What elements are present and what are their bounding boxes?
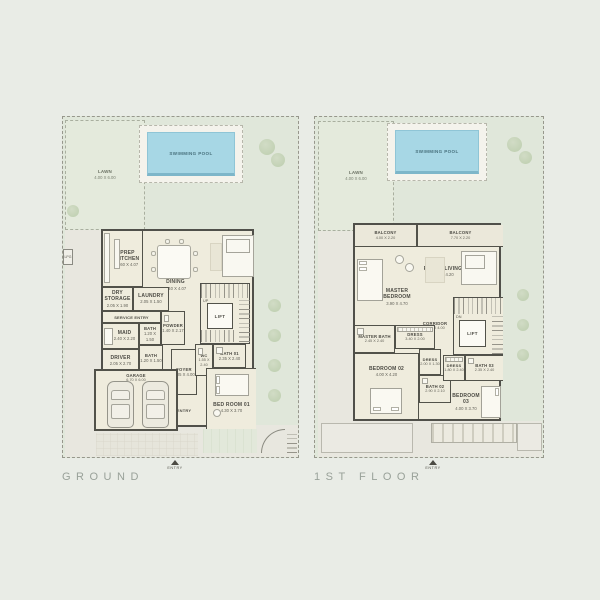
lawn-label: LAWN 4.00 X 6.00: [94, 169, 115, 180]
pillow: [216, 386, 220, 394]
car-cabin: [146, 404, 165, 419]
plan-title-first-floor: 1ST FLOOR: [314, 471, 424, 483]
kitchen-island: [114, 239, 120, 269]
room-name: DRESS: [420, 357, 439, 362]
kitchen-counter: [104, 233, 110, 283]
room-label: MAID 2.40 X 2.20: [114, 330, 135, 342]
chair: [151, 251, 156, 256]
stairs-core: UP LIFT: [200, 283, 250, 344]
room-name: LAUNDRY: [138, 293, 164, 299]
front-planting: [203, 429, 257, 453]
room-dress-master: DRESS 3.40 X 2.00: [395, 325, 435, 349]
room-dims: 3.40 X 2.00: [405, 337, 424, 342]
room-dims: 2.00 X 1.30: [420, 362, 439, 367]
pillow: [391, 407, 399, 411]
stair-direction-label: DN: [456, 315, 461, 319]
room-master-bedroom: MASTER BEDROOM 3.90 X 4.70: [355, 247, 417, 325]
room-label: DRESS 1.80 X 2.40: [444, 363, 463, 373]
first-house-outline: BALCONY 4.00 X 2.20 BALCONY 7.70 X 2.20 …: [353, 223, 501, 421]
pouf: [213, 409, 221, 417]
pillow: [359, 261, 367, 265]
plan-title-ground: GROUND: [62, 471, 144, 483]
tree: [519, 151, 532, 164]
tree: [67, 205, 79, 217]
entry-label: ENTRY: [418, 466, 448, 470]
room-label: BATH 1.20 X 1.50: [140, 353, 161, 364]
lift: LIFT: [207, 303, 233, 329]
tree: [517, 319, 529, 331]
shower: [357, 328, 364, 335]
bed: [357, 259, 383, 301]
chair: [193, 267, 198, 272]
entry-arrow-icon: [171, 460, 179, 465]
armchair: [405, 263, 414, 272]
room-living: LIVING 3.80 X 4.07: [208, 231, 256, 283]
floorplan-sheet: LAWN 4.00 X 6.00 SWIMMING POOL LPG: [0, 0, 600, 600]
room-service-entry: SERVICE ENTRY: [103, 311, 161, 323]
room-name: GARAGE: [126, 373, 146, 378]
tree: [517, 349, 529, 361]
room-dry-storage: DRY STORAGE 2.05 X 1.90: [103, 287, 133, 311]
room-name: BALCONY: [449, 230, 471, 235]
room-bath03: BATH 03 2.35 X 2.40: [465, 355, 503, 381]
sofa-cushion: [465, 255, 485, 269]
room-label: DRESS 2.00 X 1.30: [420, 357, 439, 367]
tree: [271, 153, 285, 167]
room-label: DRIVER 2.05 X 2.70: [110, 355, 131, 367]
room-bath-maid: BATH 1.20 X 1.50: [139, 323, 161, 345]
room-name: BEDROOM 03: [451, 393, 481, 406]
room-name: DRY STORAGE: [103, 290, 132, 303]
shower: [216, 347, 223, 354]
wardrobe: [445, 357, 463, 362]
pillow: [359, 267, 367, 271]
roof-slab: [321, 423, 413, 453]
swimming-pool: SWIMMING POOL: [147, 132, 235, 176]
entry-arrow-icon: [429, 460, 437, 465]
room-label: SERVICE ENTRY: [114, 315, 149, 320]
room-name: SERVICE ENTRY: [114, 315, 149, 320]
car-windshield: [146, 390, 165, 400]
rug: [210, 243, 222, 271]
room-dims: 1.20 X 1.50: [140, 358, 161, 363]
sofa-cushion: [226, 239, 250, 253]
first-entry-marker: ENTRY: [418, 460, 448, 470]
room-name: ENTRY: [177, 408, 191, 413]
bed: [104, 328, 113, 345]
room-dims: 1.40 X 2.17: [162, 328, 183, 333]
room-name: DINING: [165, 279, 186, 285]
room-name: BEDROOM 02: [369, 366, 404, 372]
room-label: BALCONY 7.70 X 2.20: [449, 230, 471, 240]
pillow: [216, 376, 220, 384]
chair: [179, 239, 184, 244]
room-dims: 2.05 X 2.70: [110, 361, 131, 366]
swimming-pool: SWIMMING POOL: [395, 130, 479, 174]
room-name: DRESS: [405, 332, 424, 337]
pillow: [495, 388, 499, 396]
lawn-label: LAWN 4.00 X 6.00: [345, 170, 366, 181]
room-name: MAID: [114, 330, 135, 336]
armchair: [395, 255, 404, 264]
stair-treads: [454, 298, 504, 314]
room-dims: 4.00 X 6.00: [345, 176, 366, 181]
room-dims: 2.05 X 1.90: [103, 303, 132, 308]
room-dims: 3.90 X 4.70: [377, 301, 417, 306]
room-label: BATH 1.20 X 1.50: [140, 326, 160, 342]
room-label: BATH 02 2.90 X 2.10: [425, 384, 444, 394]
room-label: MASTER BEDROOM 3.90 X 4.70: [377, 288, 417, 306]
room-bedroom01: BED ROOM 01 4.30 X 3.70: [206, 368, 256, 429]
room-name: LAWN: [345, 170, 366, 176]
room-dims: 1.55 X 2.40: [196, 358, 212, 368]
room-label: DRESS 3.40 X 2.00: [405, 332, 424, 342]
room-laundry: LAUNDRY 2.05 X 1.50: [133, 287, 169, 311]
room-bedroom03: BEDROOM 03 4.00 X 3.70: [451, 381, 503, 423]
room-balcony-right: BALCONY 7.70 X 2.20: [417, 225, 503, 247]
chair: [165, 239, 170, 244]
room-dress02: DRESS 2.00 X 1.30: [419, 349, 441, 375]
room-master-bath: MASTER BATH 2.45 X 2.40: [355, 325, 395, 353]
room-name: BATH: [140, 353, 161, 358]
chair: [193, 251, 198, 256]
room-dims: 4.00 X 3.70: [451, 406, 481, 411]
room-dress03: DRESS 1.80 X 2.40: [443, 355, 465, 381]
room-prep-kitchen: PREP KITCHEN 2.60 X 4.07: [103, 231, 143, 287]
ground-entry-marker: ENTRY: [160, 460, 190, 470]
room-dims: 2.35 X 2.40: [219, 356, 240, 361]
lift: LIFT: [459, 320, 486, 347]
room-label: LAUNDRY 2.05 X 1.50: [138, 293, 164, 305]
room-balcony-left: BALCONY 4.00 X 2.20: [355, 225, 417, 247]
toilet: [164, 315, 169, 322]
room-label: BEDROOM 03 4.00 X 3.70: [451, 393, 481, 411]
room-maid: MAID 2.40 X 2.20: [103, 323, 139, 349]
lpg-box: LPG: [63, 249, 73, 265]
room-dims: 2.40 X 2.20: [114, 336, 135, 341]
lpg-label: LPG: [64, 255, 71, 259]
room-label: BATH 03 2.35 X 2.40: [475, 363, 494, 373]
room-dims: 2.45 X 2.40: [358, 339, 390, 344]
stair-treads: [492, 314, 503, 354]
chair: [151, 267, 156, 272]
room-dims: 2.35 X 2.40: [475, 368, 494, 373]
room-label: ENTRY: [177, 408, 191, 413]
room-label: BEDROOM 02 4.00 X 4.20: [369, 366, 404, 378]
room-name: LAWN: [94, 169, 115, 175]
pool-label: SWIMMING POOL: [169, 151, 212, 156]
room-label: BALCONY 4.00 X 2.20: [374, 230, 396, 240]
room-name: BATH 03: [475, 363, 494, 368]
room-label: POWDER 1.40 X 2.17: [162, 323, 183, 334]
room-name: BATH 02: [425, 384, 444, 389]
room-name: POWDER: [162, 323, 183, 328]
room-name: BALCONY: [374, 230, 396, 235]
stair-treads: [239, 298, 250, 342]
first-floor-plot: LAWN 4.00 X 6.00 SWIMMING POOL BALCONY 4…: [314, 116, 544, 458]
pool-label: SWIMMING POOL: [415, 149, 458, 154]
toilet: [422, 378, 428, 384]
room-name: MASTER BEDROOM: [377, 288, 417, 301]
car-cabin: [111, 404, 130, 419]
entry-pergola: [431, 423, 517, 443]
tree: [268, 359, 281, 372]
toilet: [468, 358, 474, 364]
stairs-core: DN LIFT: [453, 297, 503, 355]
toilet: [198, 348, 203, 355]
room-bedroom02: BEDROOM 02 4.00 X 4.20: [355, 353, 419, 419]
room-family-living: FAMILY LIVING 4.00 X 4.20: [417, 247, 503, 297]
room-label: MASTER BATH 2.45 X 2.40: [358, 334, 390, 344]
room-bath-driver: BATH 1.20 X 1.50: [139, 345, 163, 371]
room-dims: 4.00 X 4.20: [369, 372, 404, 377]
bed: [215, 374, 249, 396]
car-windshield: [111, 390, 130, 400]
first-lawn: LAWN 4.00 X 6.00: [318, 121, 394, 231]
lift-label: LIFT: [467, 331, 478, 336]
room-dims: 2.05 X 1.50: [138, 299, 164, 304]
lift-label: LIFT: [215, 314, 226, 319]
tree: [268, 299, 281, 312]
room-dims: 1.80 X 2.40: [444, 368, 463, 373]
driveway: [96, 433, 198, 456]
car: [107, 381, 134, 428]
roof-slab: [517, 423, 542, 451]
entry-label: ENTRY: [160, 466, 190, 470]
room-garage: GARAGE 6.70 X 6.00: [94, 369, 178, 431]
ground-plot: LAWN 4.00 X 6.00 SWIMMING POOL LPG: [62, 116, 299, 458]
room-name: DRESS: [444, 363, 463, 368]
room-powder: POWDER 1.40 X 2.17: [161, 311, 185, 345]
pillow: [373, 407, 381, 411]
room-label: DRY STORAGE 2.05 X 1.90: [103, 290, 132, 308]
room-name: BATH: [140, 326, 160, 331]
tree: [507, 137, 522, 152]
room-dims: 4.00 X 6.00: [94, 175, 115, 180]
gate-steps: [287, 431, 297, 453]
stair-treads: [201, 330, 237, 342]
rug: [425, 257, 445, 283]
tree: [268, 389, 281, 402]
room-name: DRIVER: [110, 355, 131, 361]
tree: [259, 139, 275, 155]
room-dims: 7.70 X 2.20: [449, 236, 471, 241]
tree: [268, 329, 281, 342]
tree: [517, 289, 529, 301]
room-dims: 2.90 X 2.10: [425, 389, 444, 394]
dining-table: [157, 245, 191, 279]
stair-treads: [201, 284, 251, 298]
room-bath01: BATH 01 2.35 X 2.40: [213, 344, 246, 368]
room-dims: 4.00 X 2.20: [374, 236, 396, 241]
wardrobe: [397, 327, 433, 332]
room-name: BED ROOM 01: [213, 402, 250, 408]
car: [142, 381, 169, 428]
room-dims: 1.20 X 1.50: [140, 331, 160, 342]
